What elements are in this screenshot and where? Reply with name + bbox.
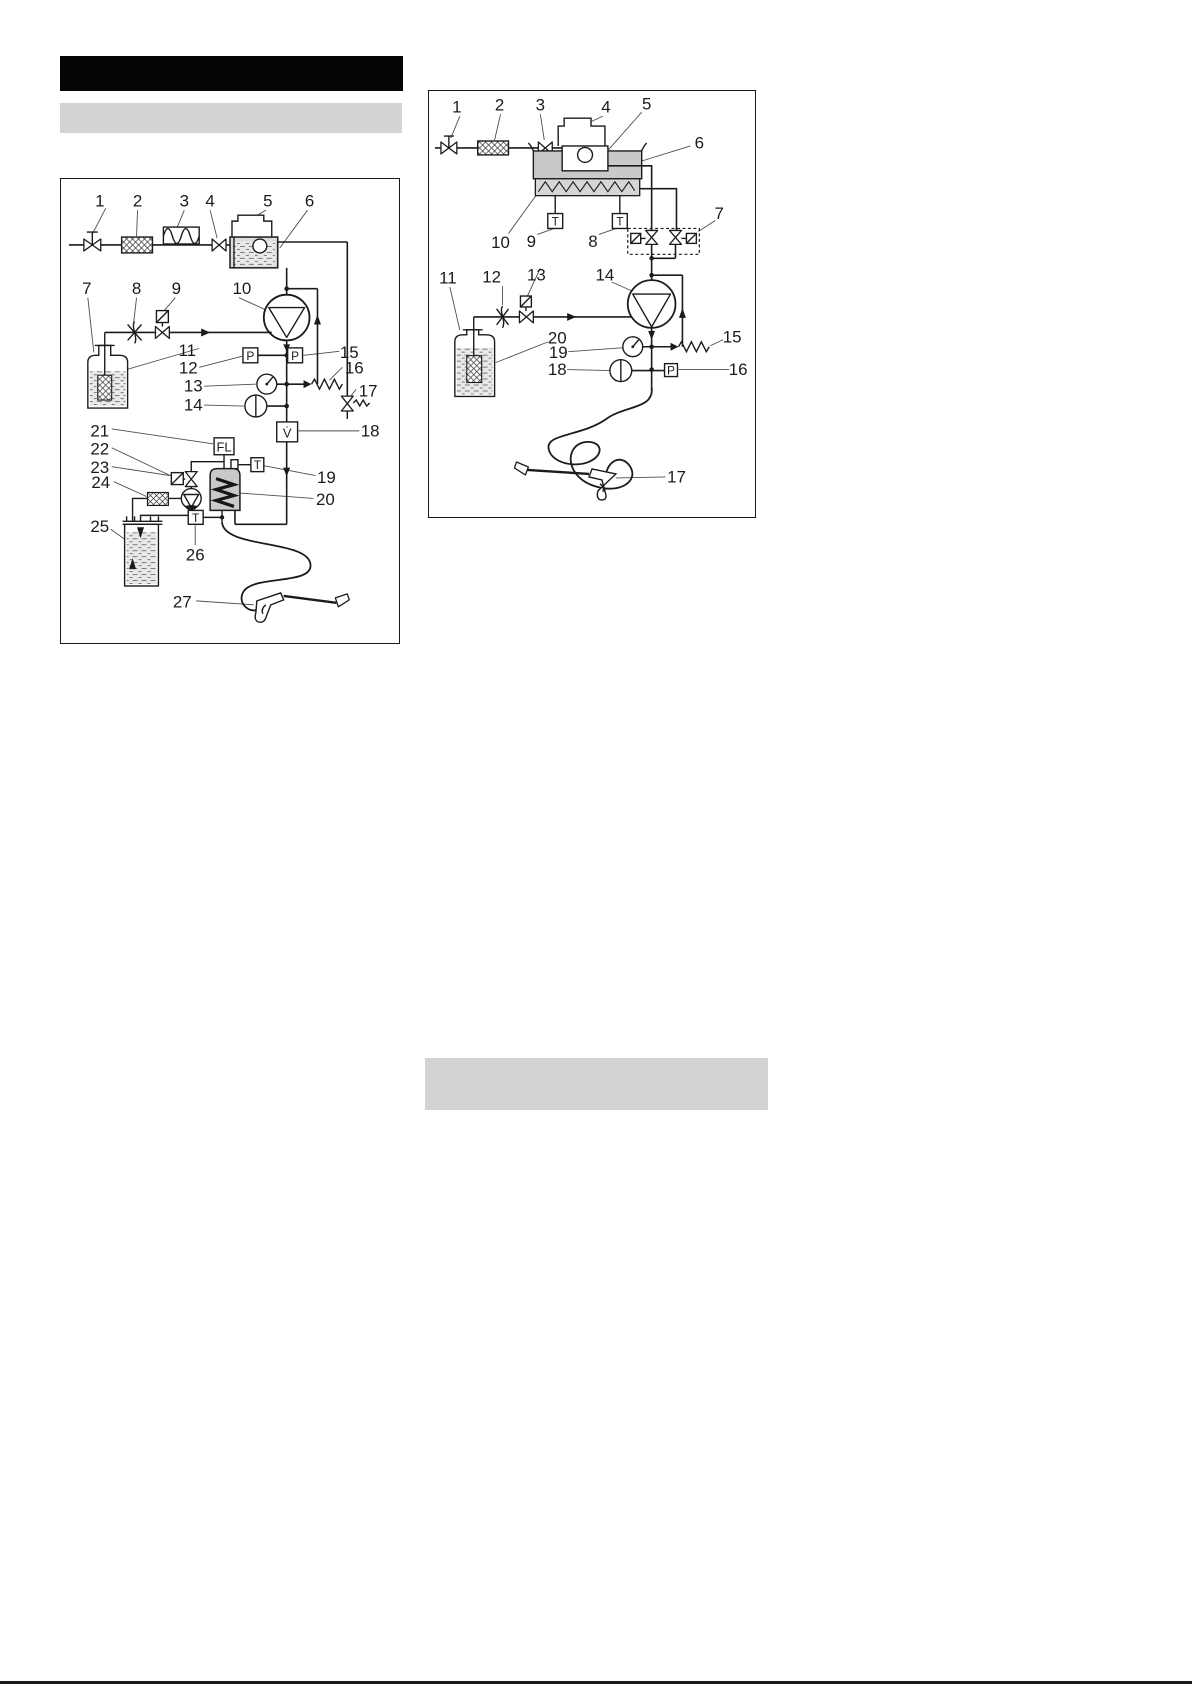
callout-2: 2 <box>133 192 142 211</box>
spray-gun <box>514 462 615 500</box>
callout-5: 5 <box>642 95 651 114</box>
callout-11: 11 <box>439 269 457 288</box>
flame-monitor-label: FL <box>217 439 232 454</box>
pressure-gauge <box>623 337 643 357</box>
float-ball <box>253 239 267 253</box>
overflow-arrow <box>671 343 679 351</box>
flow-diagram-heated-svg: P P <box>61 179 399 643</box>
tank-cover <box>558 118 605 146</box>
callout-1: 1 <box>452 98 461 117</box>
callout-26: 26 <box>186 546 205 565</box>
flow-arrow-up <box>314 315 321 325</box>
flame-monitor: FL <box>214 438 234 455</box>
callout-9: 9 <box>172 279 181 298</box>
detergent-bottle <box>88 332 128 408</box>
hose-coil <box>163 227 199 244</box>
callout-20: 20 <box>316 490 335 509</box>
fuel-tank <box>123 516 163 586</box>
temp-sensor-outlet: T <box>188 510 222 524</box>
callout-13: 13 <box>184 377 203 396</box>
fuel-solenoid <box>171 473 185 485</box>
callout-16: 16 <box>345 359 364 378</box>
callout-10: 10 <box>491 233 510 252</box>
water-filter <box>122 237 153 253</box>
flow-arrow-right <box>567 313 576 321</box>
callout-14: 14 <box>596 266 615 285</box>
fuel-pump <box>181 487 201 511</box>
float-ball <box>578 147 593 162</box>
nozzle-tip <box>514 462 528 475</box>
callout-2: 2 <box>495 96 504 115</box>
manual-page: P P <box>0 0 1192 1685</box>
callout-16: 16 <box>729 360 748 379</box>
temp-sensor-left: T <box>548 214 563 229</box>
volume-flow-sensor: V̇ <box>277 422 298 442</box>
detergent-bottle <box>455 317 495 397</box>
pressure-switch-left-label: P <box>246 349 254 363</box>
callout-25: 25 <box>90 517 109 536</box>
solenoid-valve-block <box>628 228 700 254</box>
callout-10: 10 <box>233 279 252 298</box>
water-inlet-valve <box>84 232 101 251</box>
callout-17: 17 <box>667 467 686 486</box>
callout-15: 15 <box>723 327 742 346</box>
callout-19: 19 <box>317 468 336 487</box>
pressure-gauge <box>257 374 277 394</box>
callout-3: 3 <box>536 96 545 115</box>
fuel-valve <box>185 472 197 487</box>
overflow-arrow <box>304 380 312 388</box>
page-bottom-rule <box>0 1681 1192 1684</box>
overflow-valve-spring <box>312 379 343 389</box>
flow-diagram-tank-heated: T T <box>428 90 756 518</box>
callout-12: 12 <box>482 268 501 287</box>
flow-diagram-tank-heated-svg: T T <box>429 91 755 517</box>
callout-24: 24 <box>91 473 110 492</box>
callout-9: 9 <box>527 232 536 251</box>
water-inlet-valve <box>441 136 457 154</box>
section-heading-bar <box>60 103 402 133</box>
tank-inlet-valve <box>212 239 226 251</box>
heater-boiler <box>210 460 240 511</box>
spray-lance <box>527 470 589 474</box>
temp-sensor-heater: T <box>238 458 264 472</box>
callout-4: 4 <box>205 192 214 211</box>
temp-sensor-heater-label: T <box>254 458 261 472</box>
flow-arrow-down <box>648 331 655 340</box>
spray-lance <box>284 596 337 603</box>
callout-1: 1 <box>95 192 104 211</box>
flow-switch <box>610 360 632 382</box>
flow-arrow-right <box>201 328 210 336</box>
flow-switch <box>245 395 267 417</box>
pressure-switch: P <box>665 364 678 378</box>
callout-12: 12 <box>179 359 198 378</box>
pressure-switch-label: P <box>667 364 675 378</box>
callout-6: 6 <box>695 133 704 152</box>
callout-18: 18 <box>548 360 567 379</box>
heater-inlet-line <box>235 442 287 525</box>
callout-22: 22 <box>90 439 109 458</box>
temp-sensor-stubs <box>555 196 620 214</box>
callout-7: 7 <box>82 279 91 298</box>
temp-sensor-right-label: T <box>616 215 623 229</box>
callout-21: 21 <box>90 421 109 440</box>
callout-14: 14 <box>184 396 203 415</box>
flow-arrow-down-2 <box>283 468 290 477</box>
pressure-switch-right: P <box>288 348 303 363</box>
temp-sensor-left-label: T <box>552 215 559 229</box>
pressure-switch-left: P <box>243 348 258 363</box>
flow-diagram-heated: P P <box>60 178 400 644</box>
high-pressure-pump <box>264 295 310 341</box>
section-heading-bar-2 <box>425 1058 768 1110</box>
spray-gun <box>255 593 349 622</box>
callout-5: 5 <box>263 192 272 211</box>
callout-8: 8 <box>132 279 141 298</box>
callout-27: 27 <box>173 592 192 611</box>
detergent-valve <box>519 296 533 323</box>
callout-13: 13 <box>527 266 546 285</box>
water-filter <box>478 141 509 155</box>
nozzle-tip <box>335 594 349 607</box>
float-tank <box>230 215 278 268</box>
callout-18: 18 <box>361 421 380 440</box>
callout-7: 7 <box>715 204 724 223</box>
detergent-suction-filter <box>467 356 482 383</box>
volume-flow-sensor-label: V̇ <box>283 425 292 440</box>
callout-3: 3 <box>180 192 189 211</box>
flow-arrow-up <box>679 308 686 318</box>
callout-8: 8 <box>588 232 597 251</box>
temp-sensor-right: T <box>612 214 627 229</box>
temp-sensor-outlet-label: T <box>192 511 199 525</box>
callout-4: 4 <box>601 98 610 117</box>
detergent-valve <box>155 311 169 339</box>
callout-17: 17 <box>359 382 378 401</box>
high-pressure-pump <box>628 280 676 328</box>
callout-6: 6 <box>305 192 314 211</box>
pressure-switch-right-label: P <box>291 349 299 363</box>
callout-20: 20 <box>548 328 567 347</box>
detergent-suction-filter <box>98 375 112 400</box>
heated-water-tank <box>528 118 646 196</box>
fuel-filter <box>147 493 168 506</box>
callout-11: 11 <box>178 341 196 360</box>
redacted-title-bar <box>60 56 403 91</box>
